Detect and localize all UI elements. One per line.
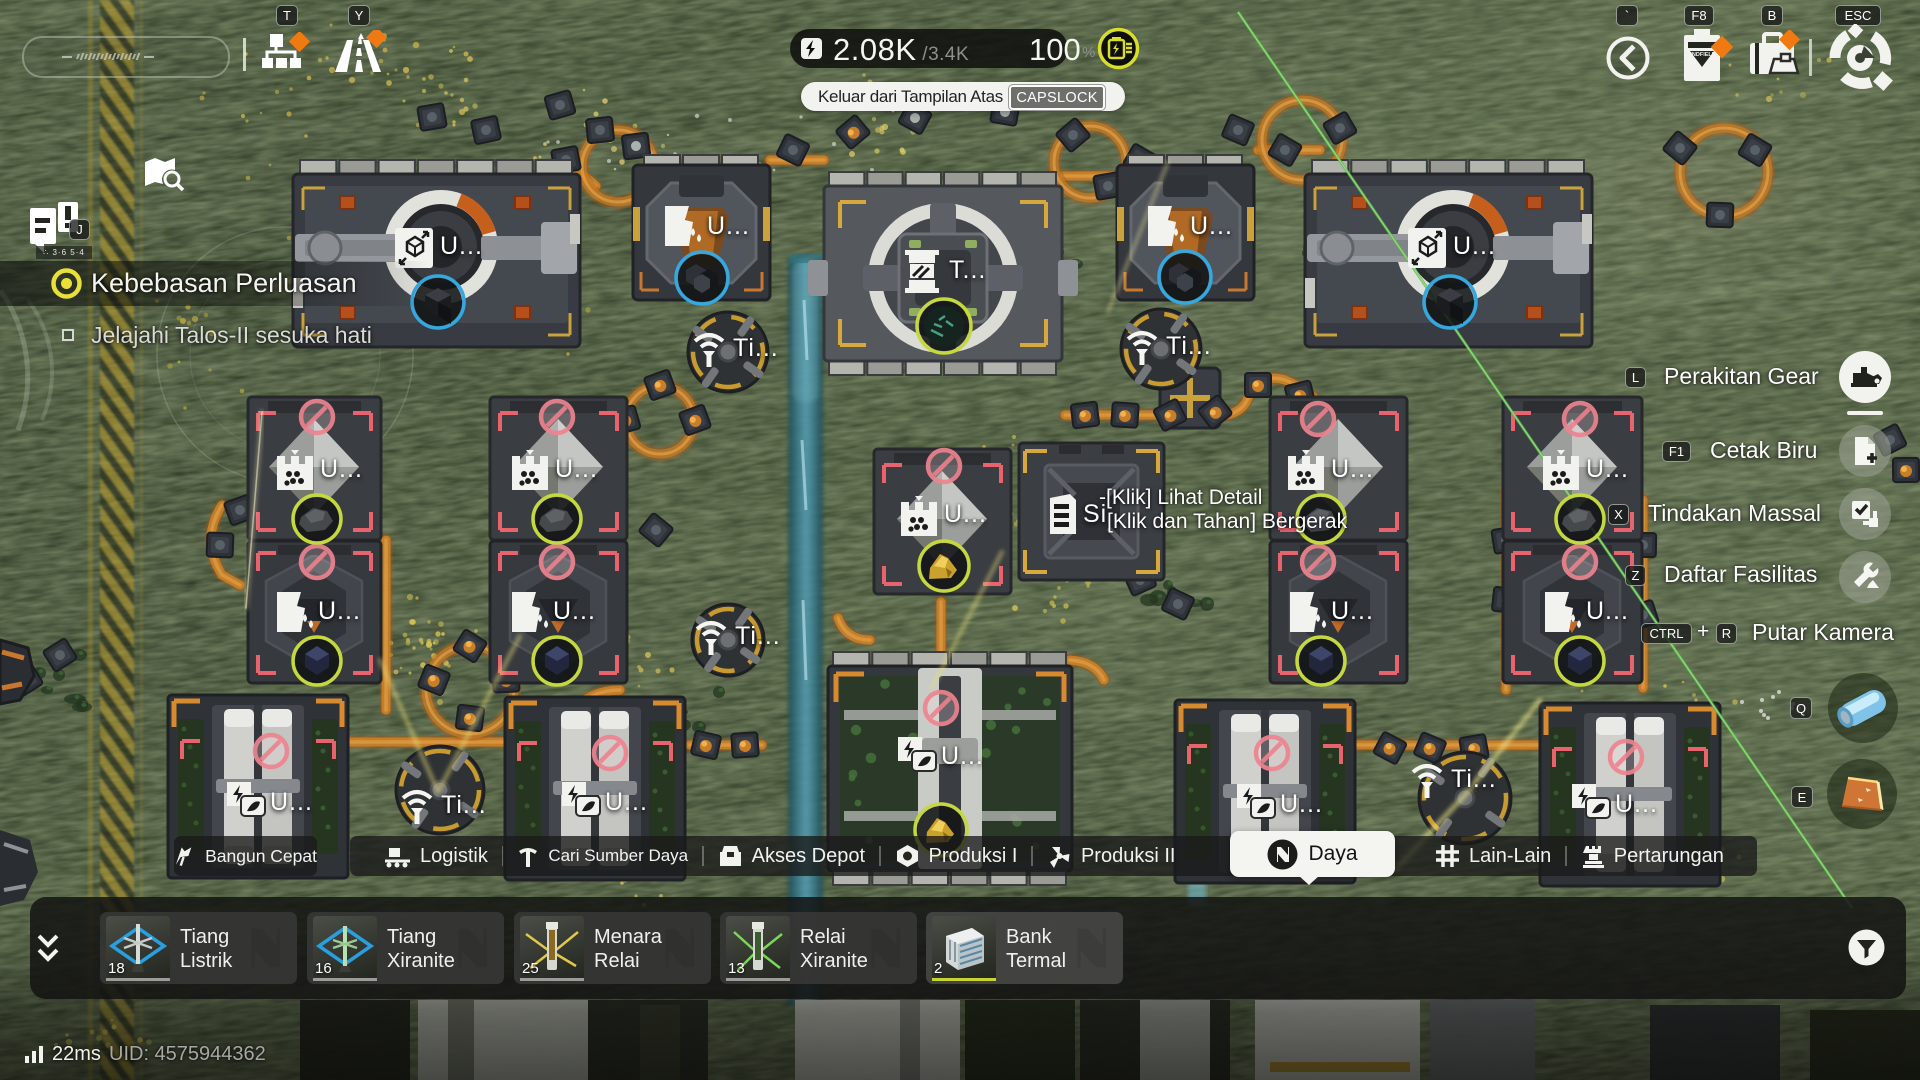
svg-text:ENDFIELD: ENDFIELD bbox=[1688, 52, 1716, 58]
